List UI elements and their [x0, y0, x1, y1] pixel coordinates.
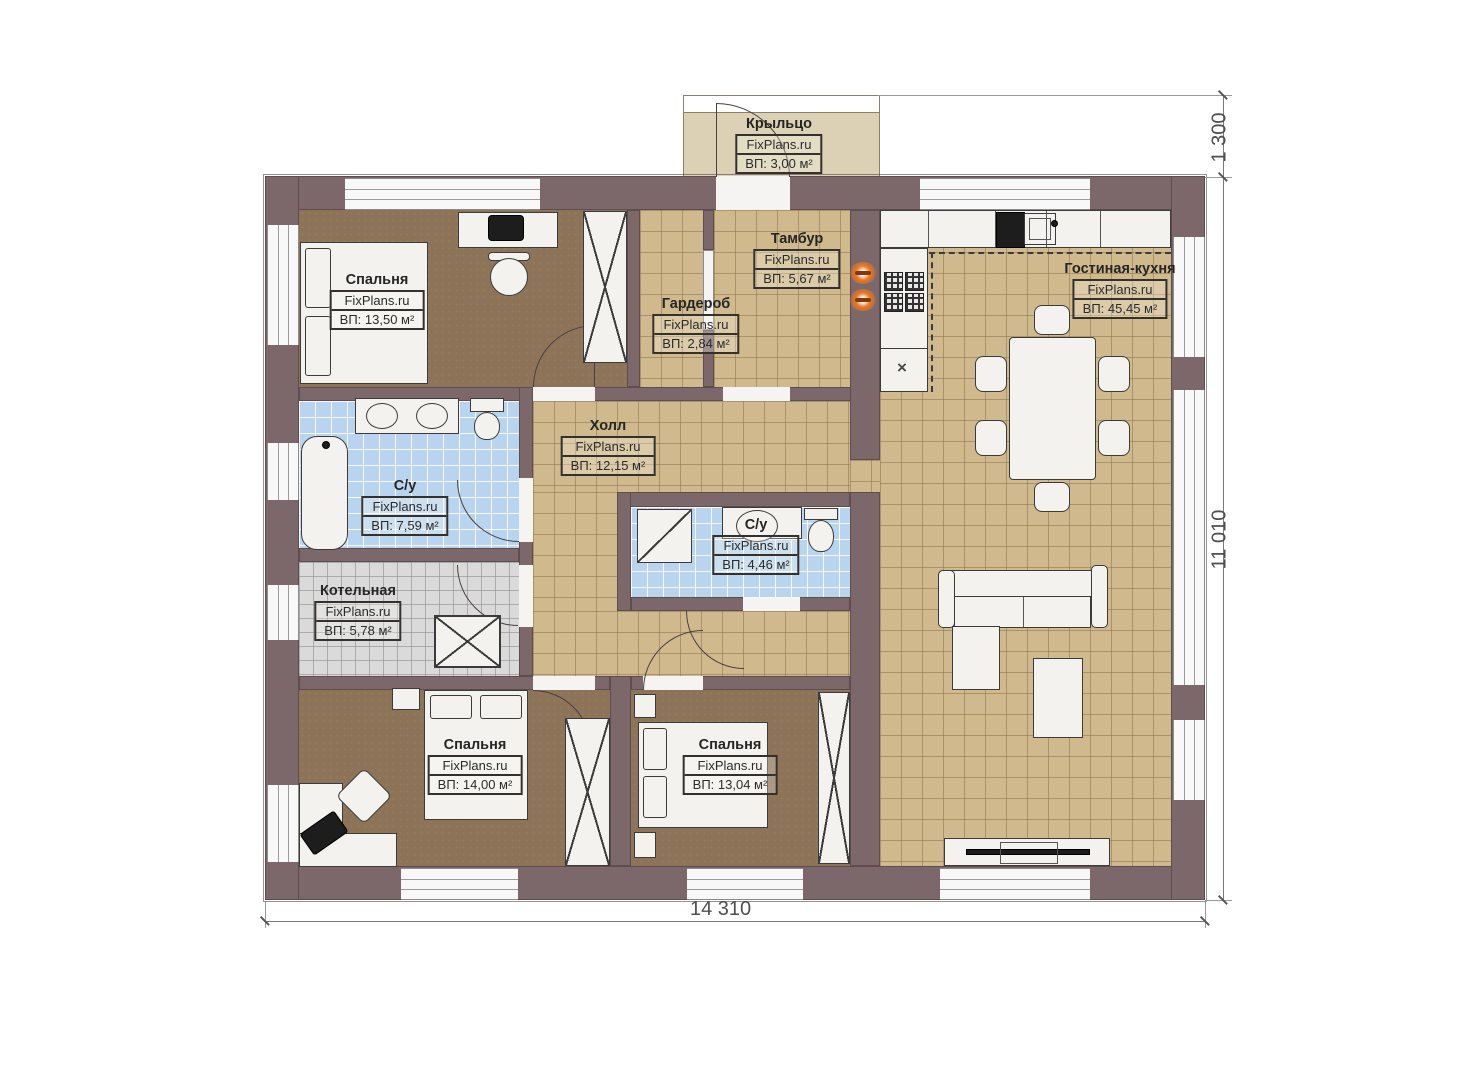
watermark: FixPlans.ru: [755, 251, 838, 270]
room-label-wardrobe: Гардероб FixPlans.ru ВП: 2,84 м²: [652, 296, 739, 354]
window: [267, 785, 299, 862]
room-info-box: FixPlans.ru ВП: 13,50 м²: [330, 290, 425, 330]
window: [1173, 720, 1205, 800]
room-area: ВП: 3,00 м²: [737, 155, 820, 172]
dimension-line-bottom: [265, 921, 1205, 922]
extension-line: [265, 902, 266, 928]
room-area: ВП: 13,04 м²: [685, 776, 776, 793]
room-label-bathroom-main: С/у FixPlans.ru ВП: 7,59 м²: [361, 478, 448, 536]
stove-burner: [884, 293, 903, 312]
room-label-living-kitchen: Гостиная-кухня FixPlans.ru ВП: 45,45 м²: [1064, 261, 1175, 319]
room-info-box: FixPlans.ru ВП: 13,04 м²: [683, 755, 778, 795]
window: [687, 868, 803, 900]
printer: [488, 215, 524, 241]
window: [267, 225, 299, 345]
watermark: FixPlans.ru: [737, 136, 820, 155]
bathtub: [301, 436, 348, 550]
sofa-chaise: [952, 626, 1000, 690]
watermark: FixPlans.ru: [654, 316, 737, 335]
door-opening-bathroom-main: [519, 478, 533, 542]
window: [940, 868, 1090, 900]
watermark: FixPlans.ru: [1075, 281, 1166, 300]
room-area: ВП: 4,46 м²: [714, 556, 797, 573]
wardrobe-cabinet: [818, 692, 850, 864]
room-area: ВП: 2,84 м²: [654, 335, 737, 352]
room-info-box: FixPlans.ru ВП: 7,59 м²: [361, 496, 448, 536]
wardrobe-cabinet: [583, 211, 627, 363]
dimension-porch: 1 300: [1209, 98, 1232, 178]
wall-segment: [610, 676, 631, 866]
window: [1173, 237, 1205, 357]
watermark: FixPlans.ru: [430, 757, 521, 776]
heater-icon: [849, 262, 877, 284]
wall-segment: [850, 210, 880, 460]
room-name: Спальня: [699, 737, 762, 753]
pillow: [430, 695, 472, 719]
sofa-armrest: [1091, 565, 1108, 628]
sofa-back: [938, 570, 1108, 598]
room-label-porch: Крыльцо FixPlans.ru ВП: 3,00 м²: [735, 116, 822, 174]
toilet: [808, 520, 834, 552]
window: [1173, 390, 1205, 685]
wall-segment: [299, 548, 519, 562]
floor-plan: × Крыльцо FixPlans.ru ВП: 3,00 м² Спальн…: [0, 0, 1473, 1080]
watermark: FixPlans.ru: [316, 603, 399, 622]
watermark: FixPlans.ru: [685, 757, 776, 776]
door-opening-bathroom-small: [743, 597, 800, 611]
heater-icon: [849, 289, 877, 311]
window: [267, 443, 299, 500]
room-info-box: FixPlans.ru ВП: 5,78 м²: [314, 601, 401, 641]
room-info-box: FixPlans.ru ВП: 14,00 м²: [428, 755, 523, 795]
room-area: ВП: 5,67 м²: [755, 270, 838, 287]
coffee-table: [1033, 658, 1083, 738]
window: [920, 178, 1090, 210]
room-name: Котельная: [320, 583, 396, 599]
room-label-boiler: Котельная FixPlans.ru ВП: 5,78 м²: [314, 583, 401, 641]
dimension-height: 11 010: [1209, 495, 1232, 585]
stove-burner: [905, 293, 924, 312]
nightstand: [634, 694, 656, 718]
shower: [637, 509, 692, 563]
stove-burner: [905, 272, 924, 291]
toilet-tank: [470, 398, 504, 412]
window: [267, 585, 299, 640]
watermark: FixPlans.ru: [363, 498, 446, 517]
room-info-box: FixPlans.ru ВП: 2,84 м²: [652, 314, 739, 354]
dish-rack: [996, 212, 1025, 248]
pillow: [480, 695, 522, 719]
dining-table: [1009, 337, 1096, 480]
window: [401, 868, 518, 900]
room-name: Крыльцо: [746, 116, 812, 132]
pillow: [305, 248, 331, 308]
chair: [1098, 420, 1130, 456]
room-label-bedroom-1: Спальня FixPlans.ru ВП: 13,50 м²: [330, 272, 425, 330]
room-name: Спальня: [346, 272, 409, 288]
chair: [975, 356, 1007, 392]
sink: [416, 403, 448, 429]
boiler-unit: [434, 615, 501, 668]
room-info-box: FixPlans.ru ВП: 3,00 м²: [735, 134, 822, 174]
faucet: [322, 441, 330, 449]
wall-segment: [631, 597, 850, 611]
room-area: ВП: 45,45 м²: [1075, 300, 1166, 317]
room-name: Спальня: [444, 737, 507, 753]
room-name: Холл: [590, 418, 626, 434]
sofa-armrest: [938, 570, 955, 628]
room-label-bedroom-2: Спальня FixPlans.ru ВП: 14,00 м²: [428, 737, 523, 795]
room-name: Гостиная-кухня: [1064, 261, 1175, 277]
wall-segment: [617, 492, 631, 611]
dimension-width: 14 310: [690, 898, 751, 921]
wall-segment: [850, 492, 880, 866]
stove-burner: [884, 272, 903, 291]
pillow: [643, 776, 667, 818]
room-area: ВП: 7,59 м²: [363, 517, 446, 534]
toilet-tank: [804, 508, 838, 520]
room-info-box: FixPlans.ru ВП: 45,45 м²: [1073, 279, 1168, 319]
room-area: ВП: 5,78 м²: [316, 622, 399, 639]
room-area: ВП: 12,15 м²: [563, 457, 654, 474]
room-info-box: FixPlans.ru ВП: 4,46 м²: [712, 535, 799, 575]
room-info-box: FixPlans.ru ВП: 5,67 м²: [753, 249, 840, 289]
cabinet-cross-icon: ×: [897, 358, 907, 378]
room-label-tambour: Тамбур FixPlans.ru ВП: 5,67 м²: [753, 231, 840, 289]
room-label-hall: Холл FixPlans.ru ВП: 12,15 м²: [561, 418, 656, 476]
door-opening-bedroom-2: [533, 676, 595, 690]
door-opening-boiler: [519, 565, 533, 627]
extension-line: [1205, 900, 1232, 901]
door-opening-bedroom-1: [533, 387, 595, 401]
room-name: С/у: [394, 478, 417, 494]
tv-console: [1000, 842, 1058, 864]
wardrobe-cabinet: [565, 718, 610, 866]
pillow: [305, 316, 331, 376]
watermark: FixPlans.ru: [332, 292, 423, 311]
wall-segment: [703, 210, 714, 250]
room-label-bathroom-small: С/у FixPlans.ru ВП: 4,46 м²: [712, 517, 799, 575]
wall-segment: [627, 210, 640, 387]
sink-basin: [1029, 218, 1051, 240]
room-info-box: FixPlans.ru ВП: 12,15 м²: [561, 436, 656, 476]
window: [345, 178, 540, 210]
chair: [1098, 356, 1130, 392]
extension-line: [878, 95, 1232, 96]
watermark: FixPlans.ru: [563, 438, 654, 457]
pillow: [643, 728, 667, 770]
room-area: ВП: 13,50 м²: [332, 311, 423, 328]
nightstand: [392, 688, 420, 710]
desk-chair: [490, 258, 528, 296]
room-name: Тамбур: [771, 231, 824, 247]
room-label-bedroom-3: Спальня FixPlans.ru ВП: 13,04 м²: [683, 737, 778, 795]
toilet: [474, 412, 500, 440]
room-name: С/у: [745, 517, 768, 533]
sink: [366, 403, 398, 429]
nightstand: [634, 832, 656, 858]
chair: [975, 420, 1007, 456]
room-name: Гардероб: [662, 296, 731, 312]
room-area: ВП: 14,00 м²: [430, 776, 521, 793]
wall-segment: [617, 492, 850, 507]
faucet: [1051, 220, 1058, 227]
watermark: FixPlans.ru: [714, 537, 797, 556]
entrance-opening: [716, 176, 790, 210]
opening-tambour-hall: [723, 387, 790, 401]
extension-line: [1205, 902, 1206, 928]
chair: [1034, 482, 1070, 512]
